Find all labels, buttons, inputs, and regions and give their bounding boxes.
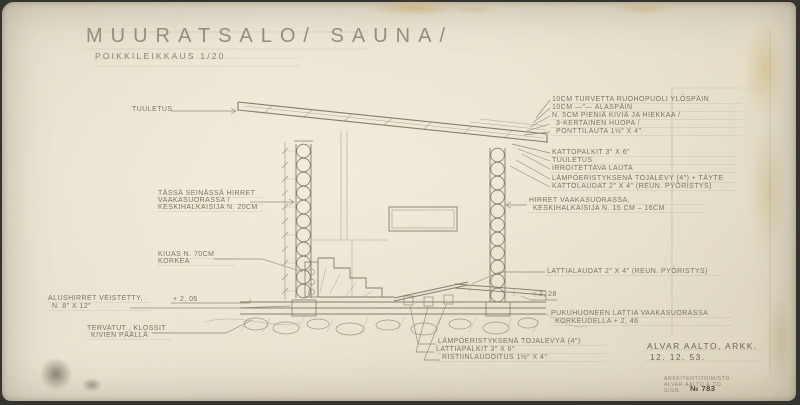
stove: [305, 262, 318, 297]
floor: [394, 282, 546, 301]
right-log-wall: [490, 148, 505, 302]
annotation-level-205: + 2, 05: [173, 296, 198, 304]
roof: [238, 102, 547, 143]
drawing-subtitle: POIKKILEIKKAUS 1/20: [95, 51, 226, 61]
foundation-stones: [205, 314, 588, 335]
annotation-right-logs-1: HIRRET VAAKASUORASSA,: [529, 197, 630, 205]
steps: [318, 258, 394, 297]
signature-date: 12. 12. 53.: [650, 352, 706, 362]
dimension-chain: [282, 142, 296, 300]
annotation-ventilation-left: TUULETUS: [132, 106, 173, 114]
annotation-dressing-floor-1: PUKUHUONEEN LATTIA VAAKASUORASSA: [551, 310, 708, 318]
annotation-blocks-2: KIVIEN PÄÄLLÄ: [91, 332, 148, 340]
floor-joists: [404, 295, 453, 306]
annotation-left-logs-3: KESKIHALKAISIJA N. 20CM: [158, 204, 258, 212]
annotation-sill-2: N. 8″ x 12″: [52, 303, 91, 311]
annotation-floor-structure-1: LÄMPÖERISTYKSENÄ TOJALEVYÄ (4″): [438, 338, 581, 346]
annotation-roof-layer-5: PONTTILAUTA 1½″ x 4″: [556, 128, 641, 136]
stamp-sign-label: SIGN.: [664, 389, 681, 395]
annotation-floor-structure-3: RISTIINLAUDOITUS 1½″ x 4″: [442, 354, 547, 362]
annotation-floor-structure-2: LATTIAPALKIT 3″ x 6″: [436, 346, 515, 354]
window-opening: [389, 207, 457, 231]
annotation-stove-2: KORKEA: [158, 258, 190, 266]
annotation-roof-structure-1: KATTOPALKIT 3″ x 6″: [552, 149, 630, 157]
fold-crease: [672, 30, 770, 372]
annotation-floor-boards: LATTIALAUDAT 2″ x 4″ (REUN. PYÖRISTYS): [547, 268, 708, 276]
annotation-right-logs-2: KESKIHALKAISIJA N. 15 CM – 16CM: [533, 205, 665, 213]
drawing-title: MUURATSALO/ SAUNA/: [86, 25, 453, 47]
annotation-roof-layer-4: 3-KERTAINEN HUOPA /: [556, 120, 640, 128]
annotation-roof-layer-3: N. 5CM PIENIÄ KIVIÄ JA HIEKKAA /: [552, 112, 680, 120]
foundation: [240, 300, 546, 316]
stamp-number: № 783: [690, 385, 715, 393]
annotation-roof-layer-2: 10CM —″— ALASPÄIN: [552, 104, 633, 112]
annotation-level-228: + 2, 28: [532, 291, 557, 299]
annotation-roof-layer-1: 10CM TURVETTA RUOHOPUOLI YLÖSPÄIN: [552, 96, 709, 104]
annotation-roof-structure-5: KATTOLAUDAT 2″ x 4″ (REUN. PYÖRISTYS): [552, 183, 712, 191]
annotation-roof-structure-3: IRROITETTAVA LAUTA: [552, 165, 633, 173]
photographed-drawing-sheet: MUURATSALO/ SAUNA/ POIKKILEIKKAUS 1/20 T…: [0, 0, 800, 405]
annotation-roof-structure-2: TUULETUS: [552, 157, 593, 165]
annotation-sill-1: ALUSHIRRET VEISTETTY,: [48, 295, 143, 303]
annotation-roof-structure-4: LÄMPÖERISTYKSENÄ TOJALEVY (4″) + TÄYTE: [552, 175, 723, 183]
annotation-dressing-floor-2: KORKEUDELLA + 2, 46: [555, 318, 638, 326]
signature-name: ALVAR AALTO, ARKK.: [647, 341, 758, 351]
